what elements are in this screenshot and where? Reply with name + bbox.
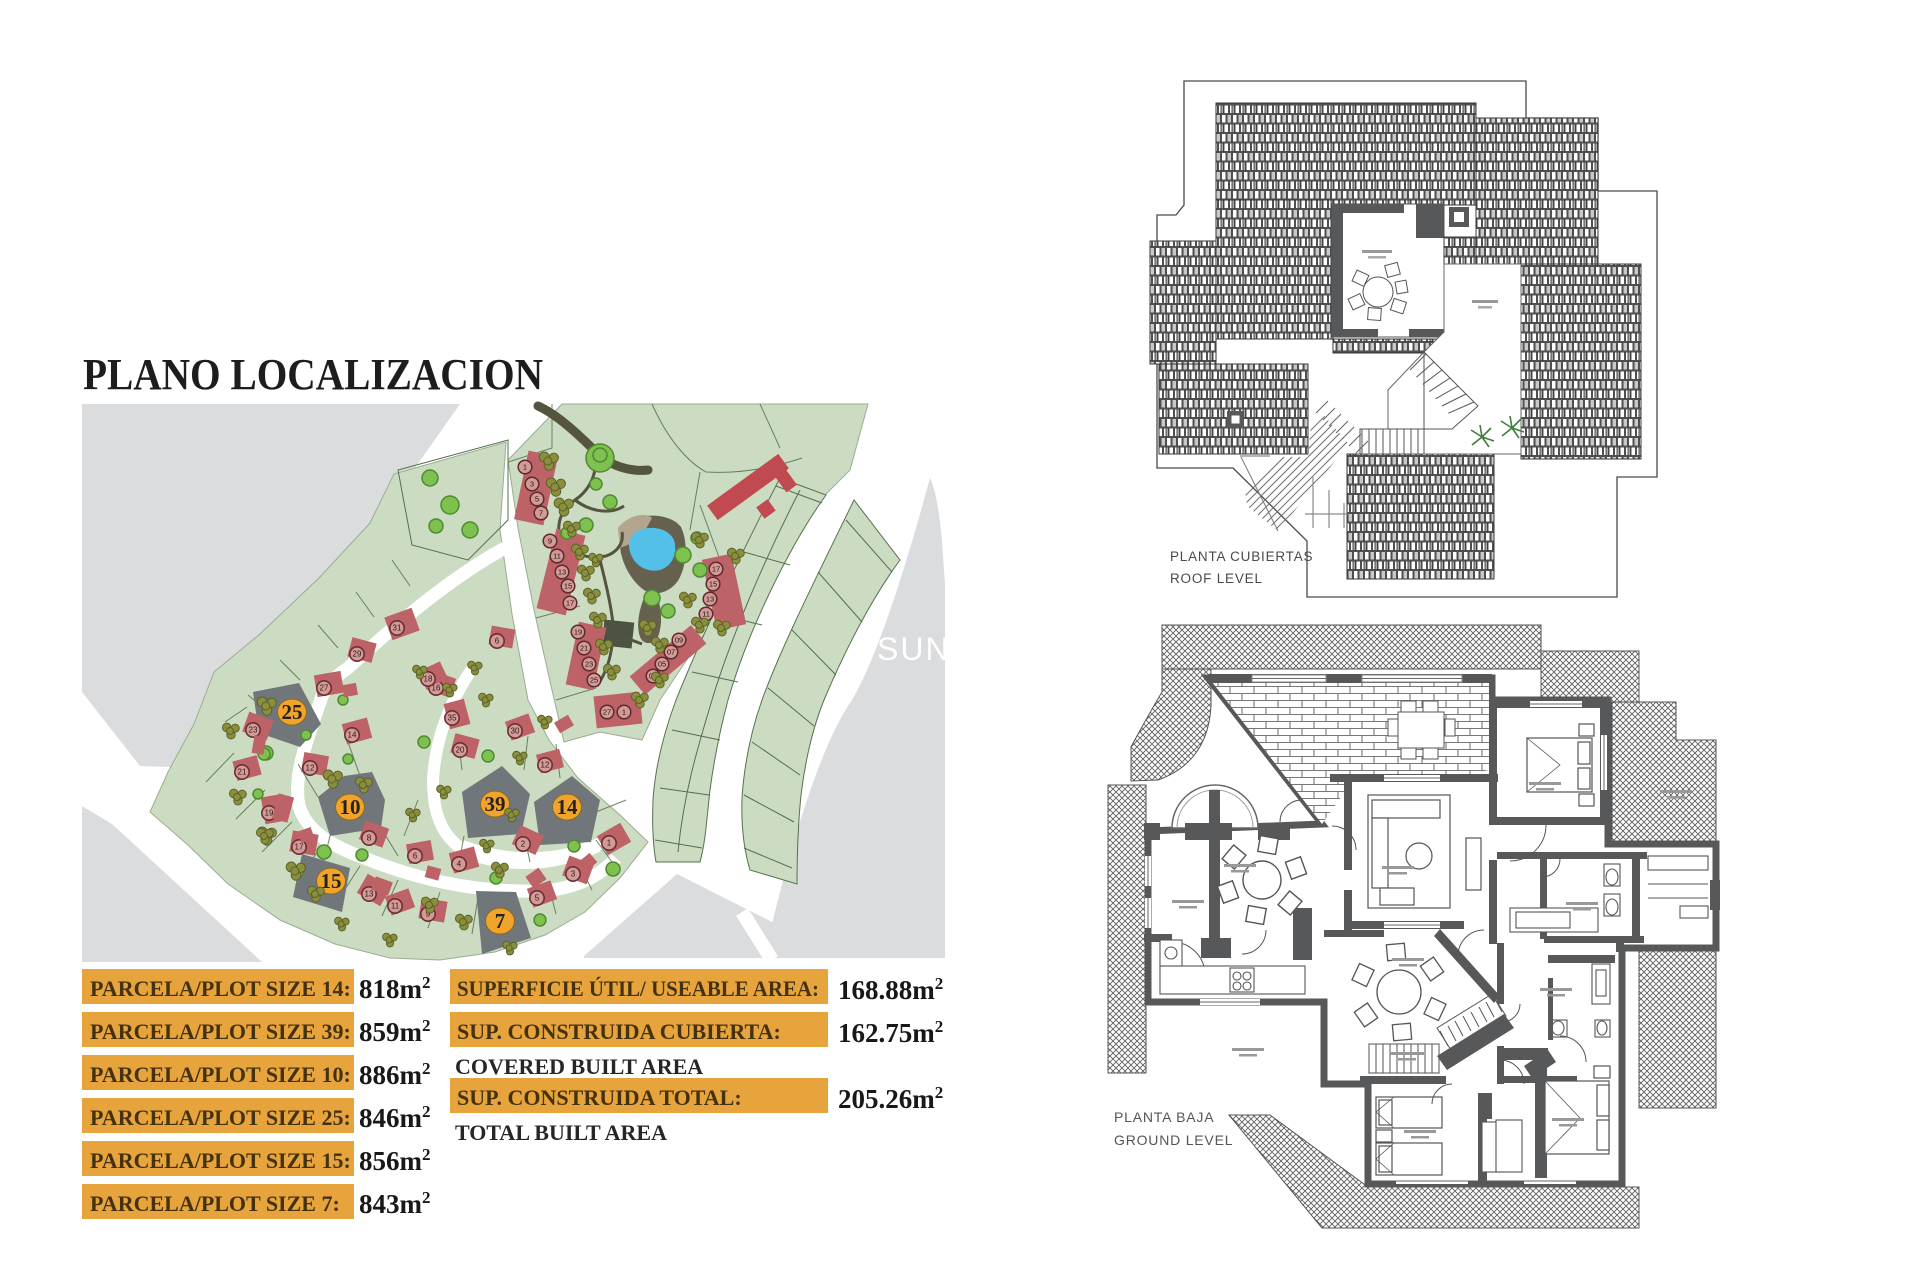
svg-text:05: 05 xyxy=(658,660,666,669)
svg-text:856m2: 856m2 xyxy=(359,1145,431,1176)
svg-text:29: 29 xyxy=(353,650,362,659)
svg-text:13: 13 xyxy=(558,568,566,577)
svg-text:25: 25 xyxy=(282,700,303,724)
svg-text:15: 15 xyxy=(564,582,572,591)
svg-text:31: 31 xyxy=(393,624,402,633)
svg-text:7: 7 xyxy=(539,509,543,518)
svg-text:19: 19 xyxy=(574,628,582,637)
svg-text:17: 17 xyxy=(712,565,720,574)
svg-text:1: 1 xyxy=(523,463,527,472)
svg-text:162.75m2: 162.75m2 xyxy=(838,1017,943,1048)
svg-text:ROOF LEVEL: ROOF LEVEL xyxy=(1170,571,1263,586)
svg-text:12: 12 xyxy=(306,764,315,773)
svg-text:PARCELA/PLOT SIZE 15:: PARCELA/PLOT SIZE 15: xyxy=(90,1148,351,1173)
svg-text:SUNS: SUNS xyxy=(877,631,974,667)
svg-text:18: 18 xyxy=(424,675,433,684)
svg-text:13: 13 xyxy=(365,890,374,899)
svg-text:14: 14 xyxy=(557,795,579,819)
svg-text:5: 5 xyxy=(535,894,540,903)
svg-text:1: 1 xyxy=(622,708,626,717)
svg-text:23: 23 xyxy=(249,726,258,735)
svg-text:6: 6 xyxy=(413,852,418,861)
svg-text:SUPERFICIE ÚTIL/ USEABLE AREA:: SUPERFICIE ÚTIL/ USEABLE AREA: xyxy=(457,976,819,1001)
svg-text:859m2: 859m2 xyxy=(359,1016,431,1047)
svg-text:COVERED BUILT AREA: COVERED BUILT AREA xyxy=(455,1054,703,1079)
svg-text:23: 23 xyxy=(585,660,593,669)
svg-text:PARCELA/PLOT SIZE 7:: PARCELA/PLOT SIZE 7: xyxy=(90,1191,340,1216)
svg-text:TOTAL BUILT AREA: TOTAL BUILT AREA xyxy=(455,1120,667,1145)
svg-text:PARCELA/PLOT SIZE 14:: PARCELA/PLOT SIZE 14: xyxy=(90,976,351,1001)
svg-text:12: 12 xyxy=(541,761,550,770)
svg-text:11: 11 xyxy=(702,610,710,619)
svg-text:PARCELA/PLOT SIZE 10:: PARCELA/PLOT SIZE 10: xyxy=(90,1062,351,1087)
svg-text:11: 11 xyxy=(391,902,400,911)
svg-text:07: 07 xyxy=(667,648,675,657)
svg-text:PLANO LOCALIZACION: PLANO LOCALIZACION xyxy=(83,350,543,399)
svg-text:27: 27 xyxy=(603,708,611,717)
svg-text:PLANTA CUBIERTAS: PLANTA CUBIERTAS xyxy=(1170,549,1313,564)
svg-text:3: 3 xyxy=(530,480,534,489)
svg-text:8: 8 xyxy=(367,834,372,843)
svg-text:14: 14 xyxy=(348,731,357,740)
svg-text:SUP. CONSTRUIDA CUBIERTA:: SUP. CONSTRUIDA CUBIERTA: xyxy=(457,1019,781,1044)
svg-text:5: 5 xyxy=(535,495,539,504)
svg-text:11: 11 xyxy=(553,552,561,561)
svg-text:17: 17 xyxy=(295,843,304,852)
svg-text:09: 09 xyxy=(675,636,683,645)
svg-text:3: 3 xyxy=(571,870,576,879)
svg-text:886m2: 886m2 xyxy=(359,1059,431,1090)
svg-text:10: 10 xyxy=(340,795,361,819)
svg-text:20: 20 xyxy=(456,746,465,755)
svg-text:30: 30 xyxy=(511,727,520,736)
svg-text:21: 21 xyxy=(580,644,588,653)
svg-text:39: 39 xyxy=(485,792,506,816)
svg-text:846m2: 846m2 xyxy=(359,1102,431,1133)
svg-text:843m2: 843m2 xyxy=(359,1188,431,1219)
svg-text:25: 25 xyxy=(590,676,598,685)
svg-text:2: 2 xyxy=(521,840,526,849)
svg-text:35: 35 xyxy=(448,714,457,723)
svg-text:SUP. CONSTRUIDA TOTAL:: SUP. CONSTRUIDA TOTAL: xyxy=(457,1085,742,1110)
svg-text:1: 1 xyxy=(607,839,612,848)
svg-text:17: 17 xyxy=(566,599,574,608)
svg-text:13: 13 xyxy=(706,595,714,604)
svg-text:15: 15 xyxy=(709,580,717,589)
svg-text:21: 21 xyxy=(238,768,247,777)
svg-text:9: 9 xyxy=(548,537,552,546)
svg-text:PARCELA/PLOT SIZE 25:: PARCELA/PLOT SIZE 25: xyxy=(90,1105,351,1130)
svg-text:27: 27 xyxy=(320,684,329,693)
svg-text:205.26m2: 205.26m2 xyxy=(838,1083,943,1114)
svg-text:7: 7 xyxy=(495,909,506,933)
svg-text:168.88m2: 168.88m2 xyxy=(838,974,943,1005)
svg-text:GROUND LEVEL: GROUND LEVEL xyxy=(1114,1132,1233,1148)
svg-text:PLANTA BAJA: PLANTA BAJA xyxy=(1114,1109,1214,1125)
svg-text:818m2: 818m2 xyxy=(359,973,431,1004)
svg-text:4: 4 xyxy=(457,860,462,869)
svg-text:PARCELA/PLOT SIZE 39:: PARCELA/PLOT SIZE 39: xyxy=(90,1019,351,1044)
svg-text:6: 6 xyxy=(495,637,500,646)
